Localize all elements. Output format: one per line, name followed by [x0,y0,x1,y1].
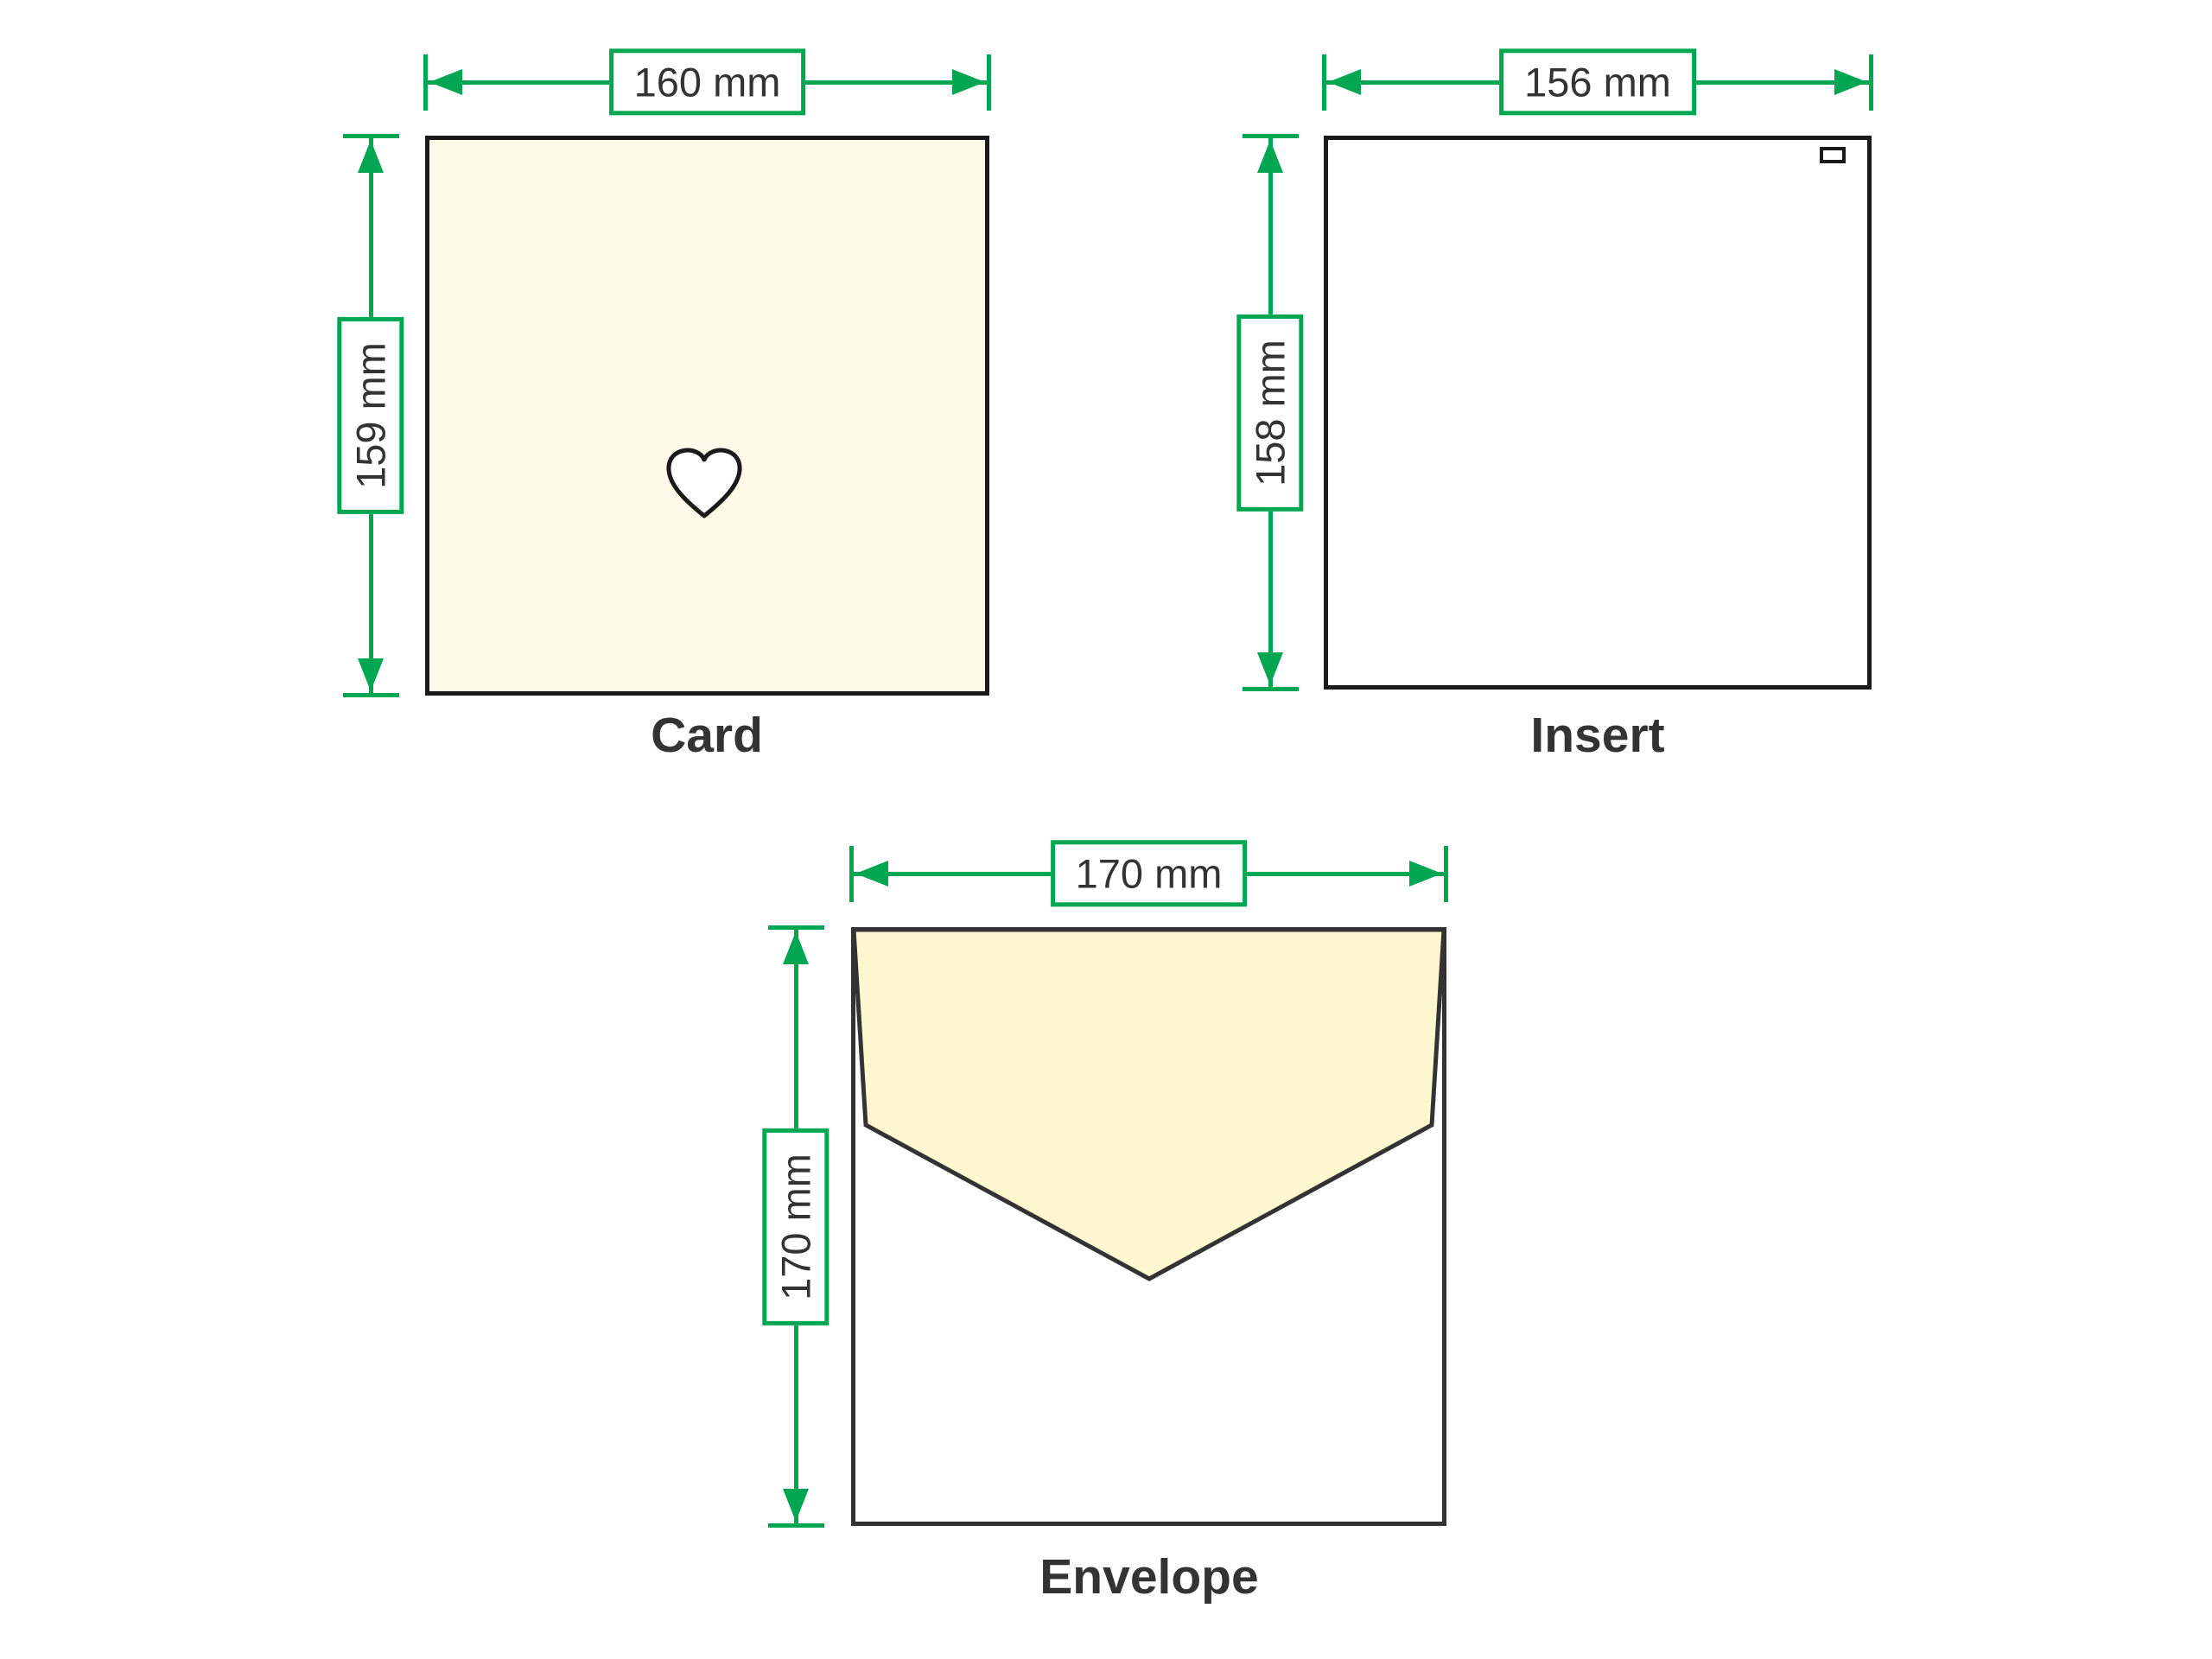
dimension-tick [343,134,399,138]
arrowhead-down [1257,652,1283,685]
card-width-label: 160 mm [609,48,806,115]
arrowhead-up [358,140,384,173]
dimension-tick [343,693,399,697]
envelope-width-label: 170 mm [1051,840,1248,906]
arrowhead-right [952,69,985,95]
arrowhead-right [1409,861,1442,887]
dimension-tick [1243,134,1299,138]
arrowhead-left [855,861,888,887]
dimension-tick [423,54,428,111]
card-shape [425,136,989,696]
envelope-height-label: 170 mm [762,1128,829,1325]
dimension-tick [1243,687,1299,691]
envelope-caption: Envelope [1039,1548,1258,1605]
dimension-tick [849,846,854,902]
insert-caption: Insert [1530,707,1664,764]
card-caption: Card [651,707,763,764]
insert-height-label: 158 mm [1236,315,1303,512]
dimension-tick [1869,54,1873,111]
tab-rectangle-icon [1820,147,1846,163]
diagram-canvas: 160 mm 159 mm Card 156 mm 158 mm Insert [0,0,2212,1659]
dimension-tick [768,1523,824,1528]
arrowhead-left [429,69,462,95]
dimension-tick [1444,846,1448,902]
card-height-label: 159 mm [337,317,404,514]
arrowhead-up [783,931,809,964]
arrowhead-down [358,658,384,691]
insert-shape [1324,136,1872,690]
arrowhead-left [1328,69,1361,95]
arrowhead-right [1834,69,1867,95]
dimension-tick [987,54,991,111]
dimension-tick [1322,54,1326,111]
heart-icon [663,441,746,520]
arrowhead-up [1257,140,1283,173]
envelope-flap [851,927,1446,1526]
insert-width-label: 156 mm [1499,48,1696,115]
dimension-tick [768,925,824,930]
arrowhead-down [783,1489,809,1522]
